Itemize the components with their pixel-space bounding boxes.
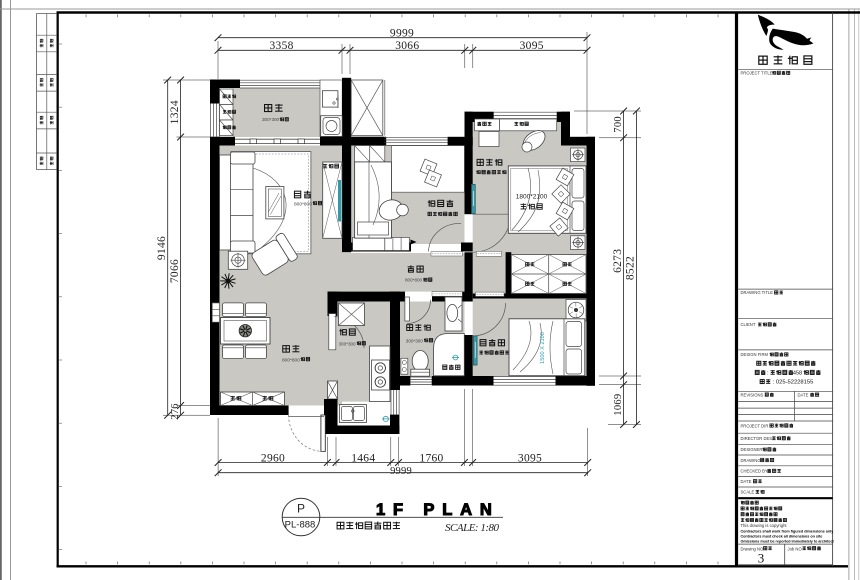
svg-text:2960: 2960 bbox=[261, 452, 285, 464]
svg-text:300*300: 300*300 bbox=[262, 117, 280, 122]
svg-text:Contractors must check all dim: Contractors must check all dimensions on… bbox=[741, 535, 823, 539]
svg-text:DATE: DATE bbox=[741, 479, 752, 484]
svg-text:458: 458 bbox=[793, 371, 802, 377]
svg-text:SCALE: SCALE bbox=[741, 490, 755, 495]
svg-text:300*300: 300*300 bbox=[339, 341, 357, 346]
svg-text:800*800: 800*800 bbox=[282, 357, 300, 363]
svg-text:9999: 9999 bbox=[390, 466, 412, 477]
svg-text:9999: 9999 bbox=[390, 28, 414, 40]
svg-text:REVISIONS: REVISIONS bbox=[741, 392, 764, 397]
svg-text:3: 3 bbox=[758, 551, 765, 566]
svg-text:1760: 1760 bbox=[419, 452, 443, 464]
svg-text:1800*2100: 1800*2100 bbox=[516, 193, 548, 200]
svg-text:3358: 3358 bbox=[269, 40, 293, 52]
svg-text:P: P bbox=[297, 502, 305, 516]
svg-text:1324: 1324 bbox=[169, 100, 181, 124]
svg-text:Contractors shall work from fi: Contractors shall work from figured dime… bbox=[741, 529, 835, 533]
svg-text:SCALE: 1:80: SCALE: 1:80 bbox=[445, 522, 500, 534]
svg-text:DRAWING TITLE: DRAWING TITLE bbox=[741, 290, 774, 295]
svg-text:DIRECTOR DES: DIRECTOR DES bbox=[741, 436, 773, 441]
svg-text:: 025-52228155: : 025-52228155 bbox=[773, 380, 814, 386]
svg-text:PROJECT TITLE: PROJECT TITLE bbox=[741, 71, 773, 76]
svg-text:DESIGN FIRM: DESIGN FIRM bbox=[741, 352, 769, 357]
svg-text:7066: 7066 bbox=[169, 259, 181, 283]
svg-text:CHECKED BY: CHECKED BY bbox=[741, 469, 768, 474]
svg-text:Job NO: Job NO bbox=[788, 546, 803, 551]
svg-text:DATE: DATE bbox=[798, 392, 809, 397]
svg-text:3095: 3095 bbox=[518, 452, 542, 464]
svg-text:6273: 6273 bbox=[612, 249, 624, 273]
svg-text:9146: 9146 bbox=[156, 236, 168, 260]
svg-text:3095: 3095 bbox=[520, 40, 544, 52]
svg-text:3066: 3066 bbox=[395, 40, 419, 52]
svg-text:DRAWING: DRAWING bbox=[741, 458, 761, 463]
svg-text:Omissions must be reported imm: Omissions must be reported immediately t… bbox=[741, 540, 835, 544]
svg-text:CLIENT: CLIENT bbox=[741, 322, 756, 327]
svg-text:1069: 1069 bbox=[613, 393, 624, 415]
svg-text:This drawing is copyright: This drawing is copyright bbox=[741, 523, 788, 528]
svg-text:DESIGNER: DESIGNER bbox=[741, 447, 763, 452]
svg-text:1464: 1464 bbox=[351, 452, 375, 464]
svg-text:8522: 8522 bbox=[625, 256, 637, 280]
svg-text:800*800: 800*800 bbox=[405, 278, 423, 283]
svg-text:300*300: 300*300 bbox=[406, 338, 424, 343]
svg-text:800*800: 800*800 bbox=[294, 201, 312, 207]
svg-text:1500 X 2100: 1500 X 2100 bbox=[540, 332, 546, 364]
svg-text:PROJECT DIR: PROJECT DIR bbox=[741, 423, 769, 428]
svg-text:700: 700 bbox=[613, 116, 624, 133]
svg-text:PL-888: PL-888 bbox=[285, 520, 316, 531]
